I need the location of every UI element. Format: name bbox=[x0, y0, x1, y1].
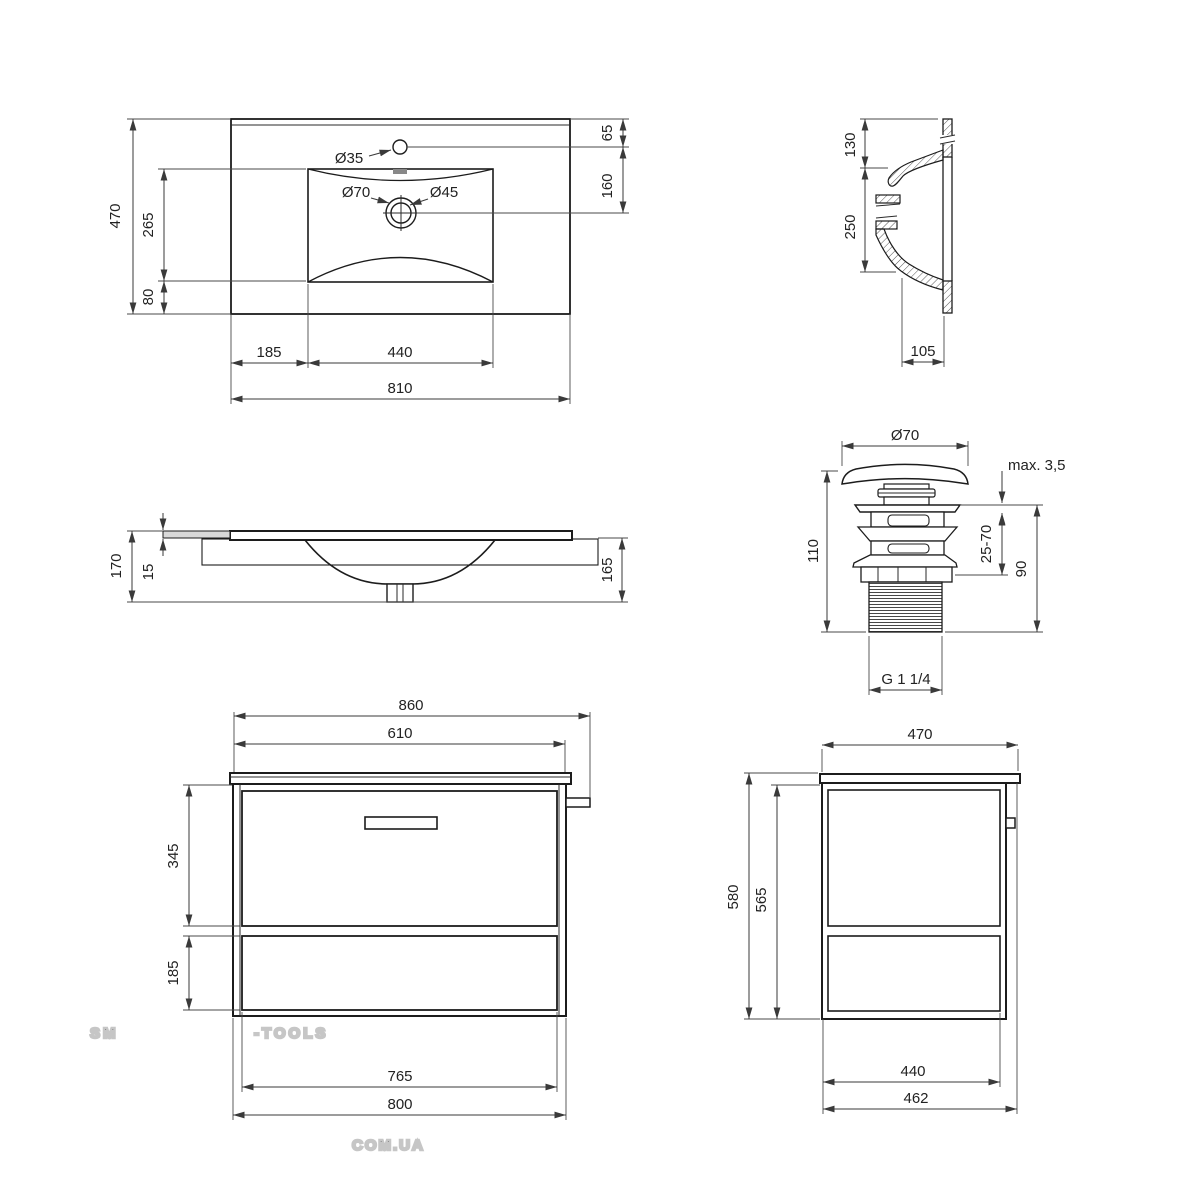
drawer-bottom-front bbox=[242, 936, 557, 1010]
valve-hex-nut bbox=[861, 567, 952, 582]
label-810: 810 bbox=[387, 380, 412, 397]
dim-total-height-580: 580 bbox=[725, 773, 820, 1019]
label-faucet-hole: Ø35 bbox=[335, 150, 363, 167]
label-470: 470 bbox=[107, 203, 124, 228]
dim-cap-diameter-70: Ø70 bbox=[842, 427, 968, 466]
label-valve-cap: Ø70 bbox=[891, 427, 919, 444]
wall-hanger-bracket bbox=[566, 798, 590, 807]
section-bottom-fin bbox=[943, 281, 952, 313]
section-deck-upper bbox=[876, 195, 900, 203]
drain-valve-detail: Ø70 max. 3,5 110 25-70 90 G 1 1/4 bbox=[805, 427, 1066, 695]
watermark-brand-rest: -TOOLS bbox=[254, 1025, 328, 1042]
dim-valve-height-110: 110 bbox=[805, 471, 866, 632]
technical-drawing-page: SM -TOOLS COM.UA Ø35 Ø70 Ø45 bbox=[0, 0, 1200, 1200]
dim-top-drawer-345: 345 bbox=[165, 785, 240, 926]
label-462: 462 bbox=[903, 1090, 928, 1107]
label-800: 800 bbox=[387, 1096, 412, 1113]
valve-cap bbox=[842, 465, 968, 485]
cabinet-front-view: 860 610 345 185 765 80 bbox=[165, 697, 590, 1120]
cabinet-side-view: 470 580 565 440 462 bbox=[725, 726, 1020, 1114]
cabinet-body-side bbox=[822, 783, 1006, 1019]
wall-rail-section bbox=[163, 531, 230, 538]
dim-thread-size: G 1 1/4 bbox=[869, 636, 942, 695]
basin-top-view: Ø35 Ø70 Ø45 470 265 80 bbox=[107, 119, 629, 404]
label-drain-outer: Ø70 bbox=[342, 184, 370, 201]
hanger-tab-side bbox=[1006, 818, 1015, 828]
dim-drawer-width-765: 765 bbox=[242, 1012, 557, 1092]
dim-body-height-165: 165 bbox=[598, 538, 628, 602]
valve-flange bbox=[855, 505, 960, 512]
drain-stub bbox=[387, 584, 413, 602]
valve-body-upper bbox=[871, 512, 944, 527]
dim-deck-thickness-15: 15 bbox=[140, 513, 163, 580]
bowl-front-curve bbox=[305, 540, 495, 584]
dim-top-depth-470: 470 bbox=[822, 726, 1018, 772]
section-rim-band bbox=[888, 150, 943, 186]
section-bowl-band bbox=[876, 229, 943, 290]
label-440-side: 440 bbox=[900, 1063, 925, 1080]
valve-stem bbox=[884, 497, 929, 505]
label-860: 860 bbox=[398, 697, 423, 714]
basin-recess-outline bbox=[202, 539, 598, 565]
label-80: 80 bbox=[140, 289, 157, 306]
label-170: 170 bbox=[108, 553, 125, 578]
label-165: 165 bbox=[599, 557, 616, 582]
dim-plate-max: max. 3,5 bbox=[1002, 457, 1066, 536]
basin-section-view: 130 250 105 bbox=[842, 119, 955, 367]
label-185: 185 bbox=[256, 344, 281, 361]
valve-neck bbox=[884, 484, 929, 489]
label-345: 345 bbox=[165, 843, 182, 868]
dim-overall-depth-470: 470 bbox=[107, 119, 231, 314]
label-265: 265 bbox=[140, 212, 157, 237]
label-565: 565 bbox=[753, 887, 770, 912]
label-470-side: 470 bbox=[907, 726, 932, 743]
basin-front-slab bbox=[230, 531, 572, 540]
label-105: 105 bbox=[910, 343, 935, 360]
dim-clamp-range: 25-70 bbox=[955, 513, 1008, 575]
valve-thread bbox=[869, 582, 942, 632]
watermark-domain: COM.UA bbox=[352, 1137, 425, 1154]
label-765: 765 bbox=[387, 1068, 412, 1085]
label-25-70: 25-70 bbox=[978, 525, 995, 563]
label-250: 250 bbox=[842, 214, 859, 239]
label-110: 110 bbox=[805, 539, 822, 563]
dim-bowl-front-80: 80 bbox=[140, 281, 164, 314]
vanity-sink-dimension-drawing: SM -TOOLS COM.UA Ø35 Ø70 Ø45 bbox=[0, 0, 1200, 1200]
valve-washer-lower bbox=[853, 555, 957, 567]
label-15: 15 bbox=[140, 564, 157, 581]
overflow-slot bbox=[393, 169, 407, 174]
countertop-front bbox=[230, 773, 571, 784]
label-160: 160 bbox=[599, 173, 616, 198]
watermark-brand-accent: SM bbox=[90, 1025, 119, 1042]
dim-body-height-565: 565 bbox=[753, 785, 820, 1019]
countertop-side bbox=[820, 774, 1020, 783]
dim-bottom-drawer-185: 185 bbox=[165, 936, 240, 1010]
label-drain-inner: Ø45 bbox=[430, 184, 458, 201]
valve-washer-upper bbox=[858, 527, 957, 541]
dim-base-depth-105: 105 bbox=[902, 278, 944, 367]
label-610: 610 bbox=[387, 725, 412, 742]
basin-front-view: 170 15 165 bbox=[108, 513, 628, 602]
label-580: 580 bbox=[725, 884, 742, 909]
section-deck-lower bbox=[876, 221, 897, 229]
label-185-drawer: 185 bbox=[165, 960, 182, 985]
label-thread: G 1 1/4 bbox=[881, 671, 930, 688]
label-130: 130 bbox=[842, 132, 859, 157]
label-max-35: max. 3,5 bbox=[1008, 457, 1066, 474]
label-65: 65 bbox=[599, 125, 616, 142]
label-440: 440 bbox=[387, 344, 412, 361]
drawer-top-front bbox=[242, 791, 557, 926]
dim-body-height-90: 90 bbox=[945, 505, 1043, 632]
watermark: SM -TOOLS COM.UA bbox=[90, 1025, 425, 1154]
dim-hanger-width-610: 610 bbox=[234, 725, 565, 772]
label-90: 90 bbox=[1013, 561, 1030, 578]
